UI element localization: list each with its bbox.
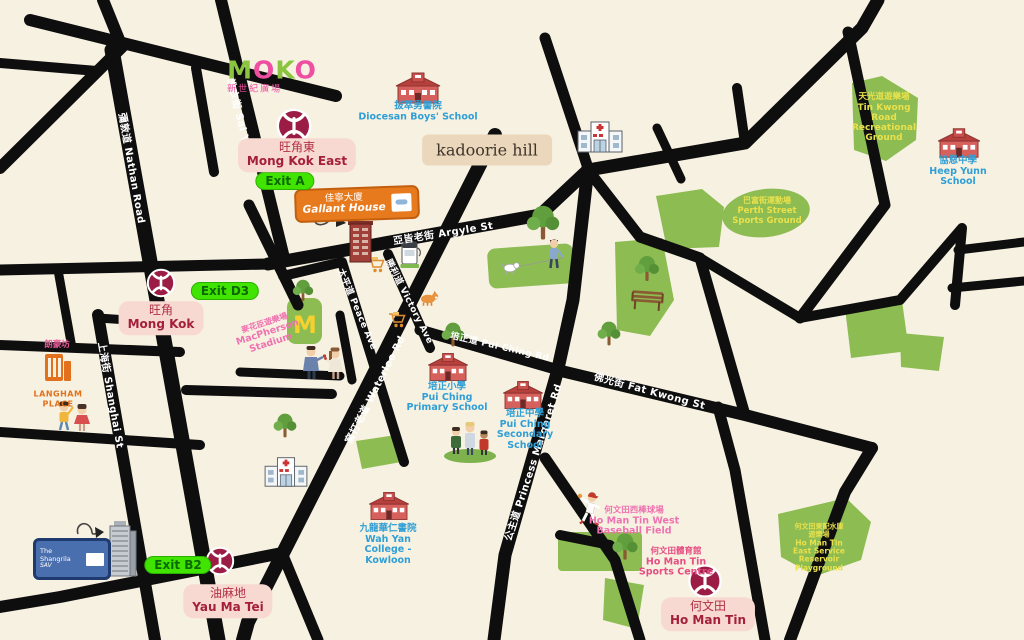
gallant-house-logo [391,193,412,212]
school-icon [938,129,980,158]
exit-b2-badge: Exit B2 [144,556,211,574]
moko-letters: MOKO [227,64,317,83]
shangrila-sign: The Shangrila SAV [33,538,111,580]
school-icon [369,493,409,520]
label-tin-kwong-ground: 天光道遊樂場 Tin Kwong Road Recreational Groun… [852,93,916,143]
label-langham-place-zh: 朗豪坊 [44,338,70,350]
green-perth-left [656,189,724,249]
label-langham-place-en: LANGHAM PLACE [34,389,83,408]
arrow-to-skyscraper [77,524,104,538]
label-diocesan-boys-school: 拔萃男書院 Diocesan Boys' School [358,101,477,122]
langham-place-icon [45,354,71,381]
label-reservoir-playground: 何文田東配水庫 遊樂場 Ho Man Tin East Service Rese… [793,523,845,572]
label-pui-ching-primary: 培正小學 Pui Ching Primary School [407,382,488,414]
tree-icon [274,414,297,438]
moko-subtitle: 新世紀廣場 [227,86,317,95]
mtr-logo-icon [148,270,174,296]
school-icon [503,382,543,409]
kadoorie-hill-label: kadoorie hill [422,135,552,166]
gallant-house-building [348,221,373,262]
moko-logo: MOKO 新世紀廣場 [227,58,317,95]
label-hmt-baseball-field: 何文田西棒球場 Ho Man Tin West Baseball Field [589,507,679,538]
station-label-mong-kok: 旺角 Mong Kok [119,301,204,335]
label-perth-street-ground: 巴富街運動場 Perth Street Sports Ground [732,197,802,227]
exit-d3-badge: Exit D3 [191,282,259,300]
hospital-icon [265,458,307,487]
gas-station-icon [401,242,421,268]
kids-trio-illustration [444,422,496,463]
gallant-house-text: 佳寧大廈 Gallant House [302,192,386,217]
label-heep-yunn-school: 協恩中學 Heep Yunn School [929,156,986,188]
shangrila-logo [86,553,104,566]
shangrila-text: The Shangrila SAV [40,548,71,570]
station-label-yau-ma-tei: 油麻地 Yau Ma Tei [183,584,272,618]
station-label-mong-kok-east: 旺角東 Mong Kok East [238,138,356,172]
school-icon [428,354,468,381]
exit-a-badge: Exit A [255,172,314,190]
label-hmt-sports-centre: 何文田體育館 Ho Man Tin Sports Centre [639,548,713,579]
corgi-icon [421,291,438,306]
station-label-ho-man-tin: 何文田 Ho Man Tin [661,597,755,631]
green-bench-park [615,238,674,336]
green-argyle-park [487,243,576,289]
school-icon [396,73,440,103]
map-canvas: M [0,0,1024,640]
hospital-icon [578,122,622,152]
label-pui-ching-secondary: 培正中學 Pui Ching Secondary School [497,409,553,452]
green-right-b [900,333,944,371]
gallant-house-label: 佳寧大廈 Gallant House [294,185,420,223]
label-wah-yan-college: 九龍華仁書院 Wah Yan College - Kowloon [359,524,416,567]
